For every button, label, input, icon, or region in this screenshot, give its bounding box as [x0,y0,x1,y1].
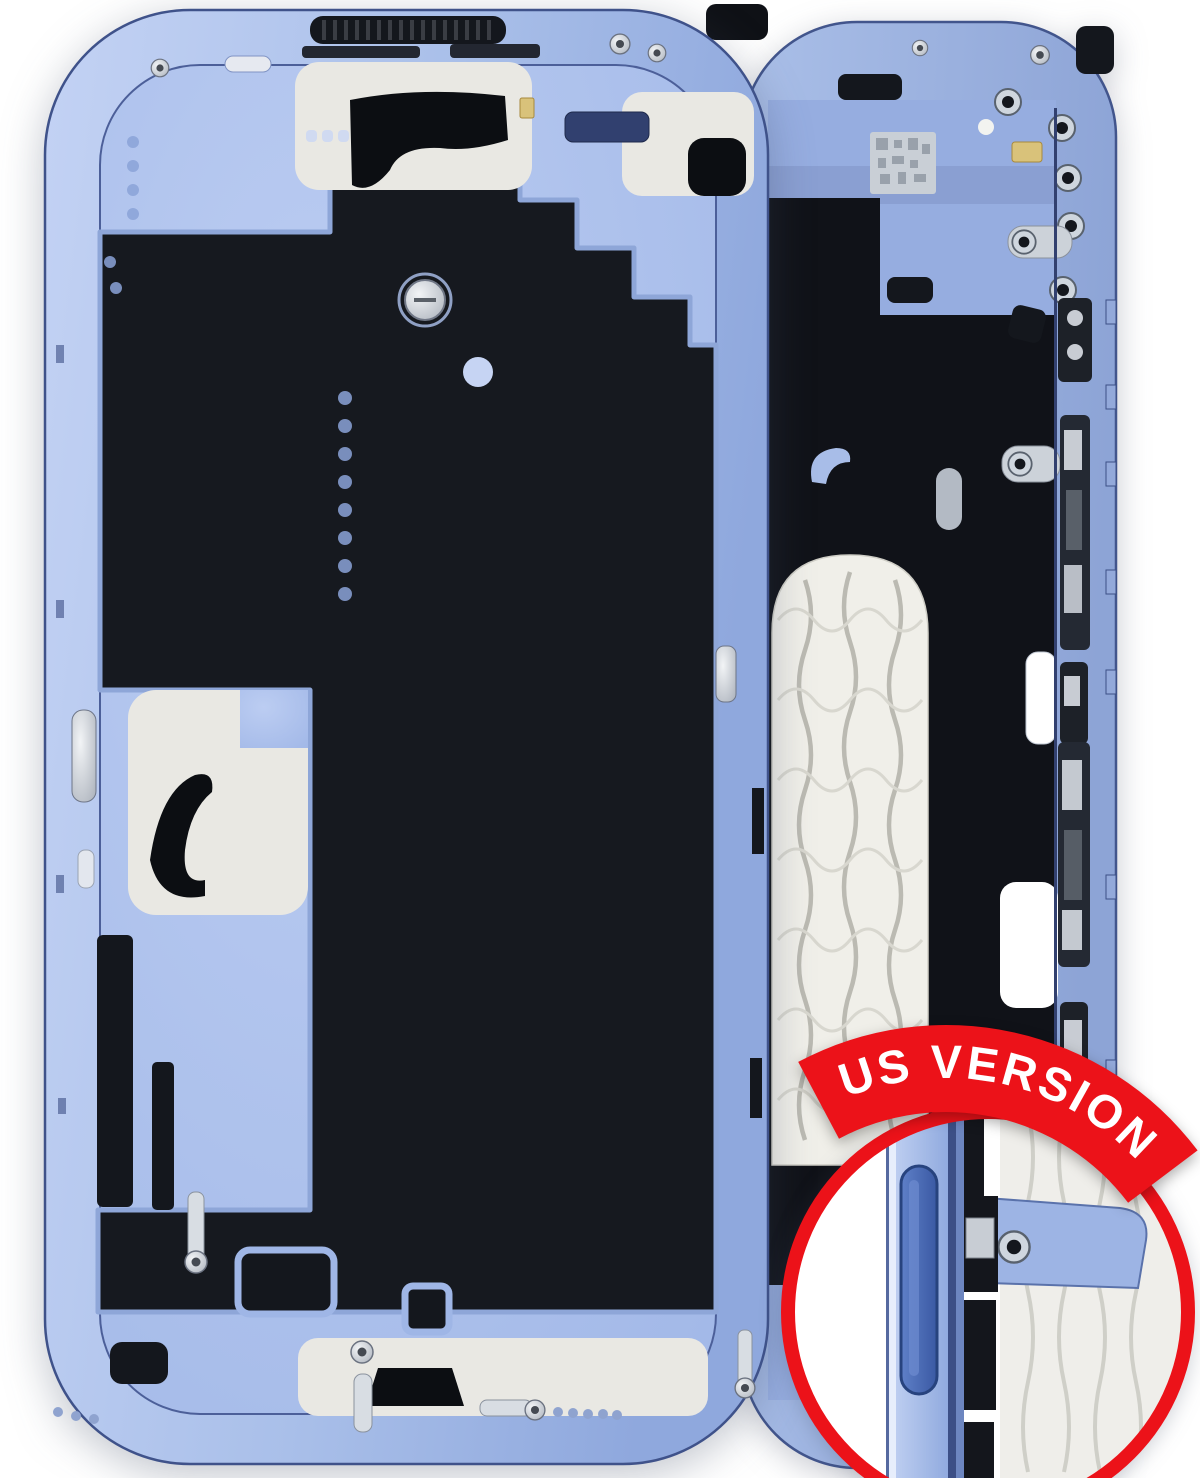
mid-left-cutout [128,690,308,915]
screw [1049,115,1075,141]
bottom-flex [110,1342,168,1384]
screw [610,34,630,54]
white-dot [978,119,994,135]
gray-pill-cutout [936,468,962,530]
screw [1012,230,1035,253]
screw [648,44,666,62]
round-hole [463,357,493,387]
antenna-flex [838,74,902,100]
top-center-cutout [295,62,534,190]
corner-bracket [1076,26,1114,74]
display-latch [565,112,649,142]
power-button-zoom [901,1166,937,1394]
corner-screw [399,274,451,326]
screw [151,59,169,77]
screw [1031,46,1050,65]
front-frame [45,10,768,1464]
screw [1055,165,1081,191]
earpiece-shadow [302,46,420,58]
flex-connector [887,277,933,303]
antenna-strip [97,935,133,1207]
top-clip [706,4,768,40]
frame-cutout [1000,882,1058,1008]
screw [1008,452,1031,475]
screw [998,1231,1029,1262]
top-right-cutout [622,92,754,196]
midframe-photo: US VERSION [0,0,1200,1478]
antenna-strip [152,1062,174,1210]
top-slot [225,56,271,72]
framed-cutout [405,1286,449,1332]
earpiece-shadow [450,44,540,58]
frame-cutout [1026,652,1056,744]
qr-code [870,132,936,194]
side-clip [716,646,736,702]
screw [912,40,927,55]
product-photo: US VERSION [0,0,1200,1478]
framed-cutout [238,1250,334,1314]
rail-gap [750,1058,762,1118]
screw [995,89,1021,115]
gold-contact [1012,142,1042,162]
rail-gap [752,788,764,854]
side-tab [78,850,94,888]
volume-button [72,710,96,802]
speaker-mesh [310,16,506,44]
